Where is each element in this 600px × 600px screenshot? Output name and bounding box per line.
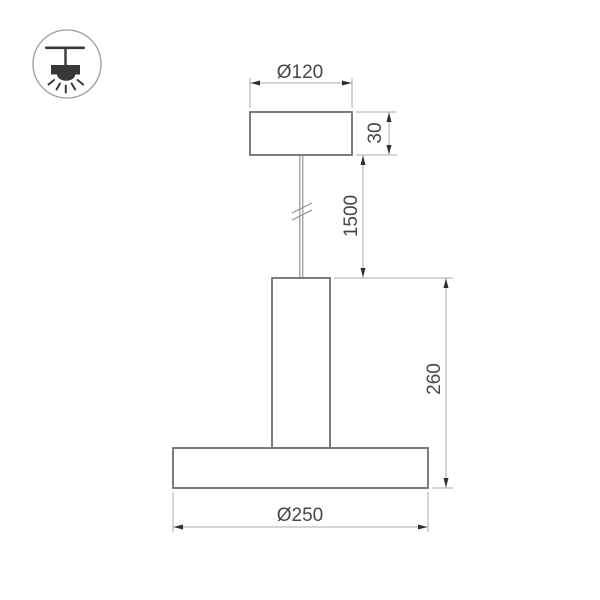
pendant-lamp-icon [33, 30, 101, 98]
dim-canopy-height: 30 [356, 112, 397, 155]
arrow-right-icon [418, 525, 428, 530]
arrow-down-icon [361, 268, 366, 278]
icon-lamp-shade [51, 65, 80, 75]
arrow-down-icon [387, 145, 392, 155]
canopy-height-label: 30 [365, 122, 386, 143]
icon-suspension-stem [64, 48, 66, 66]
lamp-outline [173, 112, 428, 488]
arrow-left-icon [174, 525, 184, 530]
technical-drawing-canvas: Ø120 30 1500 260 [0, 0, 600, 600]
arrow-up-icon [387, 113, 392, 123]
dim-suspension-length: 1500 [341, 156, 366, 278]
suspension-length-label: 1500 [341, 195, 362, 237]
cable-break-mark [292, 203, 312, 220]
base-diameter-label: Ø250 [277, 505, 323, 526]
dim-base-diameter: Ø250 [173, 492, 428, 532]
arrow-down-icon [444, 478, 449, 488]
icon-circle-border [33, 30, 101, 98]
fixture-height-label: 260 [424, 363, 445, 395]
canopy-outline [250, 112, 352, 155]
lamp-base-outline [173, 448, 428, 488]
arrow-up-icon [361, 156, 366, 166]
arrow-right-icon [342, 81, 352, 86]
canopy-diameter-label: Ø120 [277, 62, 323, 83]
dim-canopy-diameter: Ø120 [250, 62, 352, 108]
arrow-up-icon [444, 279, 449, 289]
arrow-left-icon [251, 81, 261, 86]
pendant-lamp-dimension-drawing: Ø120 30 1500 260 [0, 0, 600, 600]
lamp-body-outline [272, 278, 330, 448]
